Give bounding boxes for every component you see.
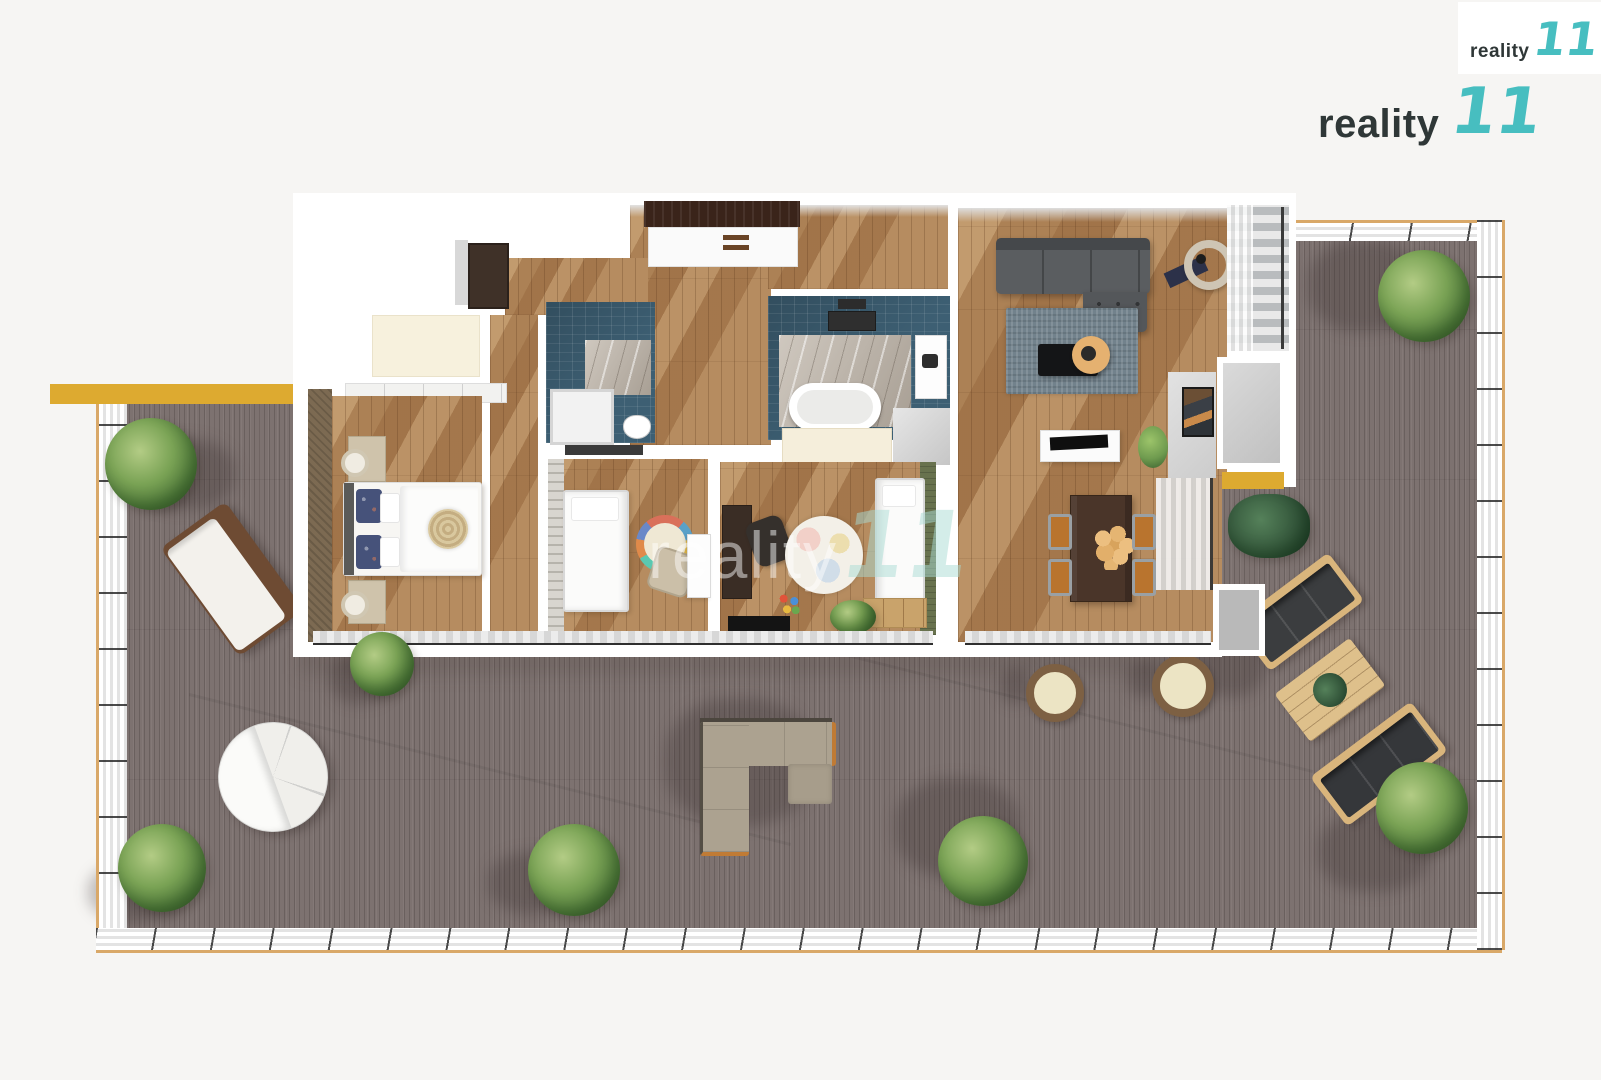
single-bed — [563, 490, 629, 612]
table-lamp — [341, 449, 369, 477]
terrace-plant — [105, 418, 197, 510]
background-mask — [88, 183, 296, 385]
terrace-plant — [118, 824, 206, 912]
wicker-chair — [1152, 655, 1214, 717]
dining-chair — [1048, 514, 1072, 550]
logo-small-box: reality 11 — [1458, 2, 1601, 74]
table-lamp — [341, 591, 369, 619]
lamp-head — [1196, 254, 1206, 264]
double-bed — [343, 482, 482, 576]
terrace-plant — [1378, 250, 1470, 342]
entry-wall-shade — [455, 240, 468, 305]
dining-chair — [1132, 559, 1156, 596]
terrace-plant — [350, 632, 414, 696]
shower-tray — [550, 389, 614, 445]
outdoor-sectional-sofa — [700, 714, 840, 849]
bath-vanity — [828, 311, 876, 331]
pillow-white — [380, 493, 400, 523]
table-decor — [1081, 346, 1096, 361]
sectional-left — [700, 722, 749, 856]
living-ceiling-shade — [958, 208, 1227, 222]
entry-nook — [893, 408, 950, 465]
terrace-plant — [528, 824, 620, 916]
toys — [777, 592, 801, 616]
jute-throw — [428, 509, 468, 549]
table-plant — [1306, 666, 1354, 714]
yellow-accent-wall-right — [1222, 472, 1284, 489]
terrace-railing-top-right — [1293, 220, 1477, 241]
closet-floor — [372, 315, 480, 377]
dining-chair — [1132, 514, 1156, 550]
watermark-mark: 11 — [836, 500, 977, 592]
wicker-chair — [1026, 664, 1084, 722]
watermark-text: reality — [648, 522, 838, 588]
annex-floor — [1219, 590, 1259, 650]
watermark: reality 11 — [648, 522, 970, 592]
nightstand — [348, 436, 386, 482]
terrace-plant — [938, 816, 1028, 906]
window-sheer — [1227, 205, 1253, 351]
terrace-railing-bottom — [96, 928, 1502, 953]
freestanding-bathtub — [789, 383, 881, 431]
corridor-floor — [490, 315, 538, 642]
sectional-ottoman — [788, 764, 832, 804]
loggia-floor — [1223, 363, 1280, 463]
sectional-sofa-gray — [996, 238, 1150, 294]
stone-accent-wall — [548, 459, 564, 636]
floor-plan-render: reality 11 reality 11 reality 11 — [0, 0, 1601, 1080]
flower-centerpiece — [1093, 526, 1133, 570]
curtain-rod — [1281, 207, 1284, 349]
window-blinds — [1227, 205, 1289, 351]
terrace-annex — [1213, 584, 1265, 656]
washbasin-cabinet — [915, 335, 947, 399]
wall-art — [1182, 387, 1214, 437]
toilet — [623, 415, 651, 439]
nightstand — [348, 580, 386, 624]
loggia-gray-room — [1217, 357, 1286, 469]
dining-chair — [1048, 559, 1072, 596]
indoor-plant — [1138, 426, 1168, 468]
logo-large-text: reality — [1318, 104, 1439, 144]
logo-large-mark: 11 — [1448, 80, 1546, 144]
logo-small-text: reality — [1470, 42, 1529, 61]
master-accent-wall — [308, 389, 332, 642]
pillow-patterned — [356, 489, 382, 523]
side-table-round — [1072, 336, 1110, 374]
sideboard-handle — [723, 245, 749, 250]
indoor-plant — [830, 600, 876, 634]
logo-large: reality 11 — [1318, 80, 1528, 150]
pillow-white — [380, 537, 400, 567]
terrace-plant-monstera — [1228, 494, 1310, 558]
sideboard-handle — [723, 235, 749, 240]
pillow-patterned — [356, 535, 382, 569]
hall-sideboard-top — [644, 201, 800, 227]
shadow — [1000, 668, 1030, 704]
logo-small-mark: 11 — [1531, 16, 1601, 62]
tub-basin — [797, 390, 873, 424]
pillow-white — [571, 497, 619, 521]
shower-marble-wall — [585, 340, 651, 395]
terrace-plant — [1376, 762, 1468, 854]
wall-niche — [565, 445, 643, 455]
sheer-curtain — [1156, 478, 1213, 590]
sink — [922, 354, 938, 368]
terrace-railing-right — [1477, 220, 1505, 950]
headboard — [344, 483, 354, 575]
window-band-living — [965, 631, 1211, 645]
shower-head — [838, 299, 866, 309]
entry-door — [468, 243, 509, 309]
